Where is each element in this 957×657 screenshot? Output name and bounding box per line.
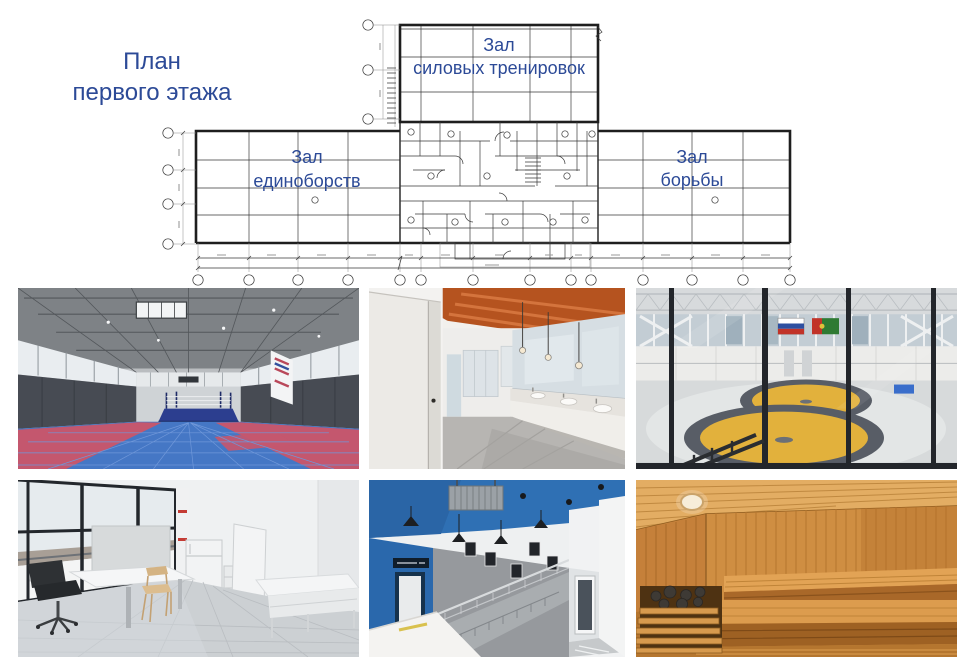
- martial-arts-hall-label-line1: Зал: [291, 147, 322, 167]
- sauna-benches: [688, 568, 957, 647]
- door-arcs: [423, 132, 565, 235]
- hall-labels: Зал силовых тренировок Зал единоборств З…: [253, 35, 723, 191]
- flag-russia: [778, 318, 804, 334]
- back-corridor: [569, 496, 625, 657]
- photo-sauna: [636, 480, 957, 657]
- wrestling-trusses: [636, 288, 957, 314]
- axis-bubbles-bottom: [193, 275, 795, 285]
- entrance-vestibule: [440, 243, 590, 267]
- wrestling-floor: [636, 380, 957, 469]
- photo-wrestling-hall: [636, 288, 957, 469]
- photo-washroom: [369, 288, 625, 469]
- photo-lobby-staircase: [369, 480, 625, 657]
- martial-arts-hall-illustration: [18, 288, 359, 469]
- cabinet-knob: [431, 399, 435, 403]
- floor-plan-drawing: Зал силовых тренировок Зал единоборств З…: [155, 10, 805, 288]
- photo-martial-arts-hall: [18, 288, 359, 469]
- slide: План первого этажа: [0, 0, 957, 657]
- core-rooms: [400, 122, 598, 243]
- storage-cabinet: [369, 292, 441, 469]
- blue-mat-stack: [894, 385, 914, 394]
- ceiling-vent: [449, 486, 503, 510]
- lobby-staircase-illustration: [369, 480, 625, 657]
- strength-hall-label-line2: силовых тренировок: [413, 58, 585, 78]
- ceiling-light: [681, 494, 703, 510]
- room-tags: [408, 129, 595, 225]
- martial-arts-hall-label-line2: единоборств: [253, 171, 360, 191]
- wrestling-hall-label-line2: борьбы: [661, 170, 724, 190]
- axis-bubbles-left: [163, 128, 196, 249]
- sauna-heater: [636, 586, 722, 653]
- medical-office-illustration: [18, 480, 359, 657]
- flag-green-red: [812, 318, 839, 334]
- wrestling-hall-illustration: [636, 288, 957, 469]
- photo-medical-office: [18, 480, 359, 657]
- axis-bubbles-top-left: [363, 20, 400, 127]
- corridor-door: [578, 580, 592, 630]
- stairs: [525, 158, 541, 182]
- washroom-illustration: [369, 288, 625, 469]
- sauna-illustration: [636, 480, 957, 657]
- dimension-lines-bottom: [193, 243, 795, 285]
- external-stair: [387, 68, 396, 123]
- floor-plan: Зал силовых тренировок Зал единоборств З…: [155, 10, 805, 288]
- gym-mat-floor: [18, 422, 359, 469]
- strength-hall-label-line1: Зал: [483, 35, 514, 55]
- wrestling-hall-label-line1: Зал: [676, 147, 707, 167]
